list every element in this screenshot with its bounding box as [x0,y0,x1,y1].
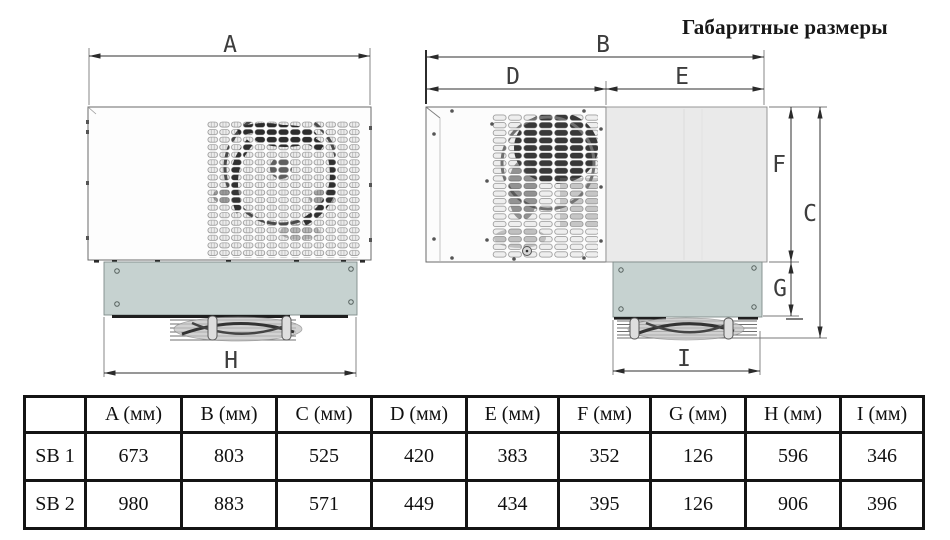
evaporator-coil-top [170,316,302,341]
table-cell: 395 [559,481,651,529]
table-cell: 906 [746,481,841,529]
table-header-a: A (мм) [86,397,182,433]
table-header-e: E (мм) [467,397,559,433]
table-cell: 449 [372,481,467,529]
table-header-f: F (мм) [559,397,651,433]
dim-label-e: E [675,64,689,90]
table-header-g: G (мм) [651,397,746,433]
vent-grille-top [207,112,360,258]
rear-panel-side [606,107,767,262]
dim-label-a: A [223,32,237,58]
table-header-i: I (мм) [841,397,924,433]
table-cell: 383 [467,433,559,481]
table-cell: 803 [182,433,277,481]
dimensions-table: A (мм) B (мм) C (мм) D (мм) E (мм) F (мм… [23,395,925,530]
table-header-b: B (мм) [182,397,277,433]
table-cell: 420 [372,433,467,481]
table-cell: 883 [182,481,277,529]
top-view: A [86,32,372,377]
page-title: Габаритные размеры [682,15,932,40]
table-header-empty [25,397,86,433]
evaporator-coil-side [617,318,757,340]
dimension-B [426,50,764,105]
dim-label-b: B [596,32,610,58]
table-row-sb1: SB 1 673 803 525 420 383 352 126 596 346 [25,433,924,481]
table-cell: 980 [86,481,182,529]
table-cell: 346 [841,433,924,481]
vent-grille-side [492,112,598,258]
dim-label-c: C [803,201,817,227]
dim-label-g: G [773,276,787,302]
table-cell: 596 [746,433,841,481]
table-header-row: A (мм) B (мм) C (мм) D (мм) E (мм) F (мм… [25,397,924,433]
table-header-c: C (мм) [277,397,372,433]
table-cell: 525 [277,433,372,481]
table-header-d: D (мм) [372,397,467,433]
dim-label-f: F [772,152,786,178]
table-cell: 434 [467,481,559,529]
row-label: SB 2 [25,481,86,529]
dimensional-drawing-page: A [0,0,950,540]
table-cell: 352 [559,433,651,481]
side-view: B D E [426,32,827,375]
table-row-sb2: SB 2 980 883 571 449 434 395 126 906 396 [25,481,924,529]
table-cell: 126 [651,433,746,481]
table-cell: 673 [86,433,182,481]
ceiling-panel-top [104,262,357,315]
row-label: SB 1 [25,433,86,481]
table-cell: 126 [651,481,746,529]
dim-label-i: I [677,346,691,372]
dim-label-d: D [506,64,520,90]
ceiling-panel-side [613,262,762,317]
table-cell: 571 [277,481,372,529]
dim-label-h: H [224,348,238,374]
table-cell: 396 [841,481,924,529]
table-header-h: H (мм) [746,397,841,433]
